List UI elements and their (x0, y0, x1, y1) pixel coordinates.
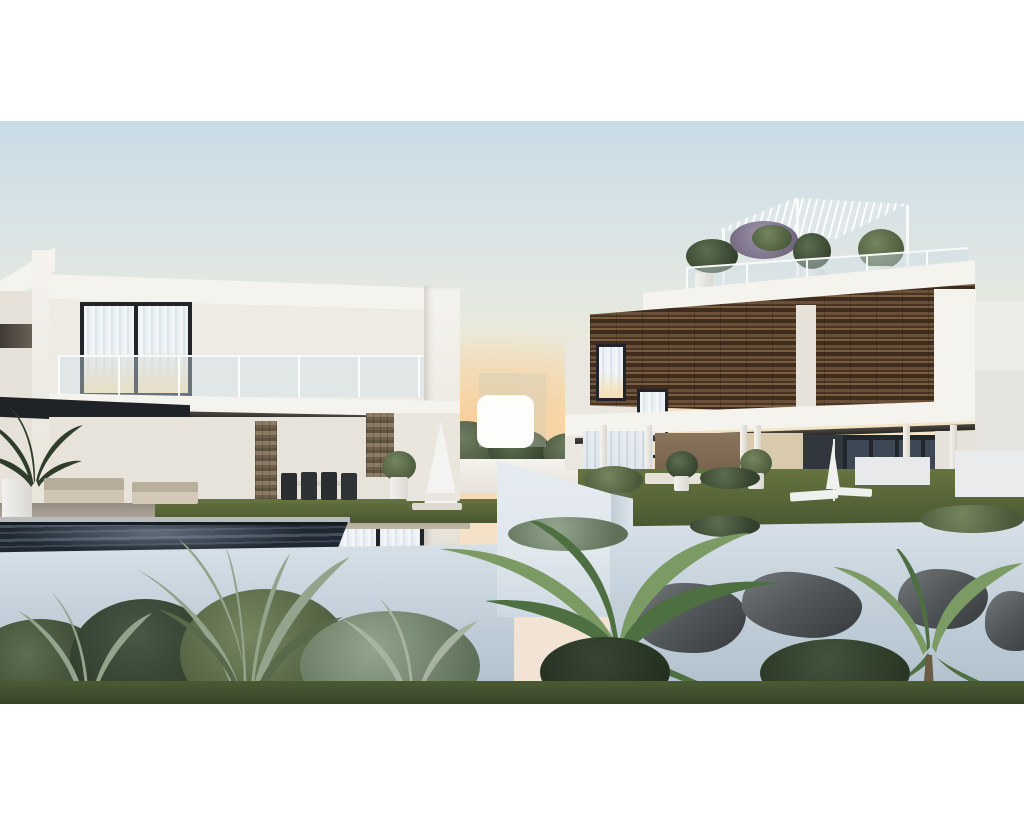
watermark (0, 121, 1024, 704)
watermark-white-blob (477, 395, 534, 448)
letterbox-bottom (0, 704, 1024, 819)
letterbox-top (0, 0, 1024, 121)
photo-area (0, 121, 1024, 704)
render-image (0, 0, 1024, 819)
